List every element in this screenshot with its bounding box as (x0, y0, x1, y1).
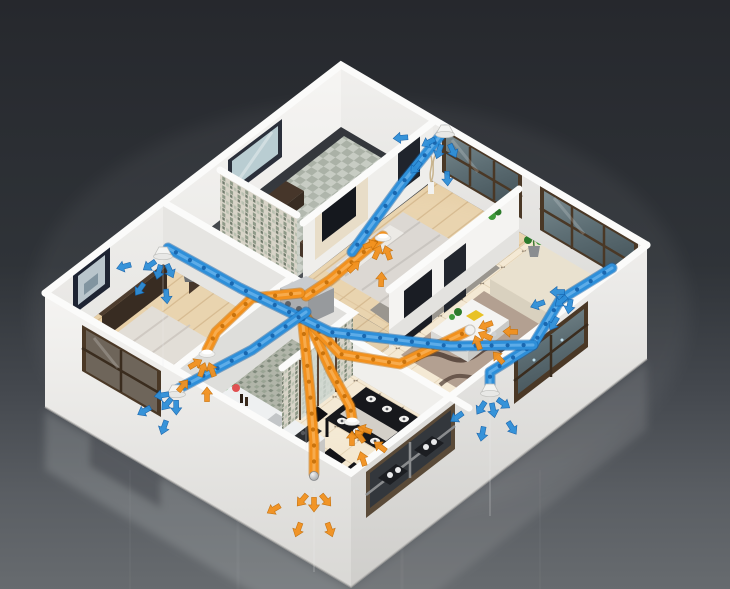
supply-duct-joint-dot (257, 343, 261, 347)
outdoor-exhaust-outlet (310, 472, 319, 481)
supply-duct-joint-dot (216, 274, 220, 278)
exhaust-duct-joint-dot (308, 396, 312, 400)
supply-duct-joint-dot (544, 322, 548, 326)
supply-duct-joint-dot (174, 250, 178, 254)
exhaust-duct-joint-dot (355, 355, 359, 359)
exhaust-duct-joint-dot (328, 366, 332, 370)
supply-duct-joint-dot (258, 296, 262, 300)
exhaust-duct-joint-dot (244, 302, 248, 306)
supply-duct-joint-dot (365, 230, 369, 234)
exhaust-duct-joint-dot (232, 313, 236, 317)
supply-duct-joint-dot (284, 324, 288, 328)
supply-duct-joint-dot (602, 271, 606, 275)
supply-duct-joint-dot (511, 355, 515, 359)
exhaust-duct-joint-dot (321, 351, 325, 355)
supply-duct-joint-dot (490, 343, 494, 347)
supply-duct-joint-dot (374, 217, 378, 221)
exhaust-duct-joint-dot (371, 357, 375, 361)
supply-duct-joint-dot (287, 310, 291, 314)
exhaust-grille (465, 325, 475, 335)
exhaust-duct-joint-dot (343, 394, 347, 398)
exhaust-duct-joint-dot (307, 380, 311, 384)
exhaust-duct-joint-dot (289, 292, 293, 296)
supply-duct-joint-dot (426, 341, 430, 345)
supply-duct-joint-dot (244, 351, 248, 355)
exhaust-duct-joint-dot (417, 353, 421, 357)
hvac-floorplan-render (0, 0, 730, 589)
exhaust-duct-joint-dot (310, 412, 314, 416)
supply-duct-joint-dot (575, 287, 579, 291)
supply-duct-joint-dot (330, 330, 334, 334)
supply-duct-joint-dot (273, 303, 277, 307)
supply-duct-joint-dot (488, 375, 492, 379)
exhaust-duct-joint-dot (325, 280, 329, 284)
supply-duct-joint-dot (316, 324, 320, 328)
scene-canvas (0, 0, 730, 589)
supply-duct-joint-dot (535, 336, 539, 340)
exhaust-duct-joint-dot (460, 332, 464, 336)
exhaust-duct-joint-dot (305, 364, 309, 368)
exhaust-duct-joint-dot (312, 459, 316, 463)
exhaust-duct-joint-dot (311, 289, 315, 293)
exhaust-duct-joint-dot (335, 380, 339, 384)
supply-duct-joint-dot (230, 359, 234, 363)
supply-duct-joint-dot (403, 178, 407, 182)
supply-duct-joint-dot (188, 258, 192, 262)
exhaust-duct-joint-dot (387, 360, 391, 364)
supply-duct-joint-dot (522, 343, 526, 347)
supply-duct-joint-dot (394, 338, 398, 342)
supply-duct-joint-dot (362, 334, 366, 338)
counter-bottles (240, 394, 243, 403)
supply-duct-joint-dot (215, 366, 219, 370)
supply-duct-joint-dot (552, 308, 556, 312)
supply-duct-joint-dot (506, 343, 510, 347)
exhaust-duct-joint-dot (273, 294, 277, 298)
supply-duct-joint-dot (355, 243, 359, 247)
exhaust-duct-joint-dot (362, 250, 366, 254)
supply-duct-joint-dot (346, 332, 350, 336)
exhaust-duct-joint-dot (349, 409, 353, 413)
supply-duct-joint-dot (383, 204, 387, 208)
exhaust-duct-joint-dot (340, 352, 344, 356)
exhaust-duct-joint-dot (311, 427, 315, 431)
supply-duct-joint-dot (202, 266, 206, 270)
exhaust-duct-joint-dot (328, 341, 332, 345)
exhaust-duct-joint-dot (312, 443, 316, 447)
supply-duct-joint-dot (270, 334, 274, 338)
exhaust-duct-joint-dot (211, 336, 215, 340)
exhaust-duct-joint-dot (337, 270, 341, 274)
exhaust-duct-joint-dot (220, 324, 224, 328)
supply-duct-joint-dot (423, 153, 427, 157)
exhaust-duct-joint-dot (304, 348, 308, 352)
supply-duct-joint-dot (297, 315, 301, 319)
supply-duct-joint-dot (244, 289, 248, 293)
supply-duct-joint-dot (378, 336, 382, 340)
supply-duct-joint-dot (230, 281, 234, 285)
exhaust-duct-joint-dot (402, 360, 406, 364)
supply-duct-joint-dot (589, 279, 593, 283)
exhaust-duct-joint-dot (302, 332, 306, 336)
supply-duct-joint-dot (393, 191, 397, 195)
supply-duct-joint-dot (442, 343, 446, 347)
supply-duct-joint-dot (458, 344, 462, 348)
supply-duct-joint-dot (410, 340, 414, 344)
